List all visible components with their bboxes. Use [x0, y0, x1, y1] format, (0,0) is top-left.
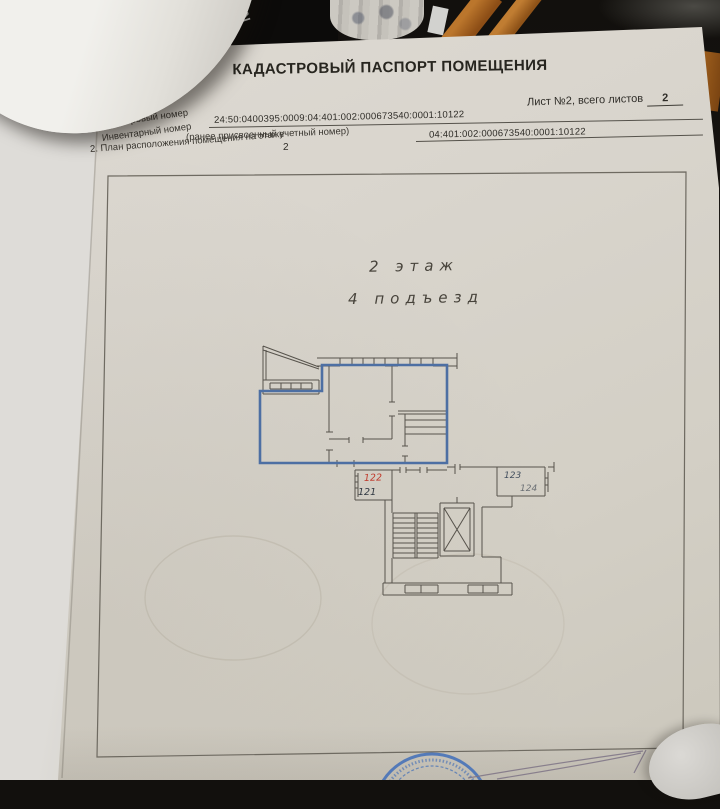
floor-label: 2 этаж [352, 256, 476, 276]
page-edge-line [62, 130, 97, 778]
apartment-number-124: 124 [520, 484, 537, 494]
floor-plan: 122 121 123 124 [260, 346, 554, 595]
sheet-count-value: 2 [647, 92, 683, 107]
stamp-text-ring [380, 760, 484, 780]
apartment-number-121: 121 [358, 487, 376, 498]
stamp-outer-ring [374, 754, 490, 780]
blue-stamp [374, 754, 490, 780]
entrance-label: 4 подъезд [340, 288, 492, 309]
faint-stamp-circle [372, 554, 564, 694]
apartment-number-123: 123 [504, 471, 521, 481]
faint-stamp-circle [145, 536, 321, 660]
signature [468, 750, 646, 779]
sheet-info-label: Лист №2, всего листов [527, 93, 644, 109]
field-value-floor-number: 2 [283, 142, 289, 153]
apartment-number-current: 122 [364, 472, 383, 484]
